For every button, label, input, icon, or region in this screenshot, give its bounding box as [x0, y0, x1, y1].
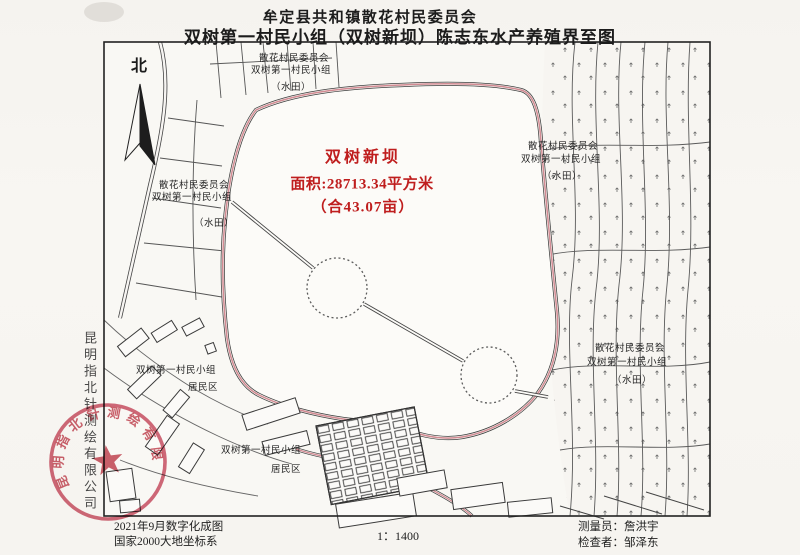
residential-label-west-group: 双树第一村民小组	[136, 362, 216, 376]
svg-text:昆明指北针测绘有限公司: 昆明指北针测绘有限公司	[36, 390, 168, 495]
field-label-rightupper-group: 双树第一村民小组	[521, 151, 601, 165]
parcel-area-mu: （合43.07亩）	[312, 196, 415, 217]
terraced-paddy-region	[542, 42, 710, 516]
field-label-rightlower-paddy: （水田）	[612, 372, 652, 386]
north-label: 北	[131, 52, 147, 76]
residential-label-south-area: 居民区	[271, 461, 301, 475]
field-label-rightupper-committee: 散花村民委员会	[528, 138, 598, 152]
pond-circle	[307, 258, 367, 318]
field-label-rightlower-group: 双树第一村民小组	[587, 354, 667, 368]
map-scale: 1：1400	[377, 529, 419, 544]
field-label-top-paddy: （水田）	[271, 79, 311, 93]
residential-label-west-area: 居民区	[188, 379, 218, 393]
residential-label-south-group: 双树第一村民小组	[221, 442, 301, 456]
field-label-left-group: 双树第一村民小组	[152, 189, 232, 203]
pond-circle	[461, 347, 517, 403]
field-label-top-group: 双树第一村民小组	[251, 62, 331, 76]
field-label-rightlower-committee: 散花村民委员会	[595, 340, 665, 354]
footer-right: 测量员：詹洪宇 检查者：邹泽东	[578, 520, 659, 551]
seal-company-text: 昆明指北针测绘有限公司	[36, 390, 168, 495]
parcel-name: 双树新坝	[325, 143, 401, 167]
scanned-map-page: 牟定县共和镇散花村民委员会 双树第一村民小组（双树新坝）陈志东水产养殖界至图 北…	[0, 0, 800, 555]
footer-checker: 检查者：邹泽东	[578, 536, 659, 552]
seal-star-icon	[91, 443, 125, 476]
footer-surveyor: 测量员：詹洪宇	[578, 520, 659, 536]
parcel-area: 面积:28713.34平方米	[290, 173, 433, 194]
field-label-rightupper-paddy: （水田）	[542, 168, 582, 182]
company-seal: 昆明指北针测绘有限公司	[36, 390, 186, 540]
field-label-left-paddy: （水田）	[194, 215, 234, 229]
page-title-line-2: 双树第一村民小组（双树新坝）陈志东水产养殖界至图	[0, 23, 800, 48]
